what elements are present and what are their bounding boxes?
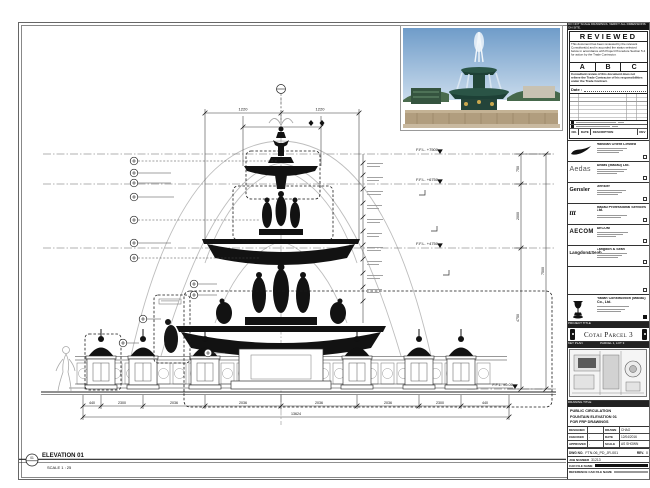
key-plan-section: KEY PLAN PARCEL 1, LOT 3 [568, 342, 649, 401]
aecom-logo: AECOM [570, 229, 594, 235]
dim-b2: 2036 [170, 401, 178, 405]
key-plan-label: KEY PLAN [568, 342, 584, 345]
log-mark-1 [571, 121, 574, 124]
log-mark-2 [571, 125, 574, 128]
cad-file-value-redacted [595, 464, 649, 467]
dim-b3: 2036 [239, 401, 247, 405]
scale-value: AS SHOWN [620, 441, 650, 448]
dim-b0: 440 [89, 401, 95, 405]
aedas-logo: Aedas [570, 166, 591, 173]
contractor-name: Yadan Construction (Macau) Co., Ltd. [597, 297, 647, 305]
bottom-dim-chains [81, 395, 512, 420]
approved-value: - [588, 441, 604, 448]
consultant-aedas: Aedas Aedas (Macau) Ltd. [568, 162, 649, 183]
drawn-value: CHAO [620, 427, 650, 434]
fountain-photo-image [403, 28, 560, 128]
title-block: DO NOT SCALE DRAWINGS. VERIFY ALL DIMENS… [567, 23, 649, 479]
consultant-name: Macau Professional Services Ltd. [597, 206, 648, 214]
contractor-block: Yadan Construction (Macau) Co., Ltd. [568, 295, 649, 322]
stamp-paragraph-1: This document has been reviewed by the r… [571, 43, 645, 57]
dim-b5: 2036 [384, 401, 392, 405]
dim-right-4750: 4750 [516, 314, 520, 322]
drawing-title-text: PUBLIC CIRCULATION FOUNTAIN ELEVATION 01… [568, 407, 649, 427]
spare-consultant-box [568, 267, 649, 295]
drawn-label: DRAWN [604, 427, 620, 434]
consultant-macau-professional: ttt Macau Professional Services Ltd. [568, 204, 649, 225]
rev-col-no: NO. [570, 129, 579, 135]
consultant-langdon-seah: Langdon&Seah Langdon & Seah [568, 246, 649, 267]
approved-label: APPROVED [568, 441, 588, 448]
log-bar-2b [612, 126, 618, 127]
log-bar-2 [576, 126, 610, 127]
log-bar-1 [576, 122, 616, 123]
contractor-mark [643, 315, 647, 319]
top-note-strip: DO NOT SCALE DRAWINGS. VERIFY ALL DIMENS… [568, 23, 649, 30]
drawing-title-line3: FOR FRP DRAWINGS [570, 420, 647, 426]
stamp-date-field[interactable] [584, 88, 646, 92]
project-title-text: Cotai Parcel 3 [584, 331, 633, 339]
cad-file-label: CAD FILE NAME [569, 464, 593, 468]
reference-cad-value [614, 471, 648, 473]
level-markers [437, 149, 518, 389]
dim-right-750: 750 [516, 166, 520, 172]
consultant-name: AECOM [597, 227, 648, 231]
elevation-scale-text: SCALE 1 : 25 [47, 465, 72, 470]
human-scale-figure [56, 347, 75, 392]
consultant-name: Aedas (Macau) Ltd. [597, 164, 648, 168]
dwg-no-row: DWG NO. FTN-06_PD_JR-001 REV. 0 [568, 449, 649, 457]
consultant-checkbox[interactable] [643, 197, 647, 201]
apex-detail-callout [277, 85, 286, 122]
drawing-sheet: 1220 1220 [18, 22, 650, 480]
ttt-logo: ttt [570, 208, 576, 217]
key-plan-note: PARCEL 1, LOT 3 [600, 342, 624, 345]
dim-b6: 2300 [436, 401, 444, 405]
dim-total: 13624 [291, 412, 301, 416]
ornament-icon [642, 329, 647, 340]
drawing-title-label: DRAWING TITLE [568, 401, 609, 404]
approval-fields: DESIGNED DRAWN CHAO CHECKED - DATE 12/04… [568, 427, 649, 449]
dim-right-2000: 2000 [516, 212, 520, 220]
stamp-log-table [570, 94, 647, 121]
rev-col-rev: REV [638, 129, 647, 135]
consultant-name: Langdon & Seah [597, 248, 648, 252]
consultant-name: Gensler [597, 185, 648, 189]
checked-label: CHECKED [568, 434, 588, 441]
dim-top-left: 1220 [239, 107, 249, 112]
handian-logo [570, 143, 597, 160]
stamp-paragraph-2: Consultant review of this document does … [571, 73, 645, 83]
dim-b7: 440 [482, 401, 488, 405]
dwg-no-label: DWG NO. [569, 451, 583, 455]
elevation-title [19, 454, 566, 466]
scale-label: SCALE [604, 441, 620, 448]
designed-label: DESIGNED [568, 427, 588, 434]
spare-checkbox[interactable] [643, 288, 647, 292]
designed-value [588, 427, 604, 434]
consultant-checkbox[interactable] [643, 239, 647, 243]
consultant-checkbox[interactable] [643, 260, 647, 264]
stamp-option-b[interactable]: B [596, 63, 622, 72]
date-value: 12/04/2016 [620, 434, 650, 441]
rev-col-description: DESCRIPTION [591, 129, 638, 135]
project-title-label: PROJECT TITLE [568, 322, 609, 325]
stamp-option-a[interactable]: A [570, 63, 596, 72]
dwg-no-value: FTN-06_PD_JR-001 [585, 451, 635, 455]
date-label: DATE [604, 434, 620, 441]
consultant-gensler: Gensler Gensler [568, 183, 649, 204]
gensler-logo: Gensler [570, 187, 590, 193]
consultant-name: Handian Orient Limited [597, 143, 648, 147]
stamp-date-label: Date : [571, 87, 582, 92]
reference-cad-label: REFERENCE CAD FILE NAME [569, 470, 612, 474]
dim-b1: 2300 [118, 401, 126, 405]
consultant-checkbox[interactable] [643, 218, 647, 222]
level-6750: F.F.L. +6750 [416, 177, 439, 182]
project-title-row: Cotai Parcel 3 [568, 328, 649, 342]
rev-label: REV. [637, 451, 644, 455]
level-7500: F.F.L. +7500 [416, 147, 439, 152]
reviewed-stamp: REVIEWED This document has been reviewed… [568, 30, 649, 141]
revision-table-header: NO. DATE DESCRIPTION REV [570, 129, 647, 135]
log-bar-1b [618, 122, 624, 123]
dim-b4: 2036 [315, 401, 323, 405]
consultant-checkbox[interactable] [643, 155, 647, 159]
fountain-pedestal [231, 349, 331, 389]
job-number-value: 31213 [591, 458, 600, 462]
checked-value: - [588, 434, 604, 441]
reviewed-title: REVIEWED [570, 32, 647, 42]
ornament-icon [570, 329, 575, 340]
elevation-bubble-number: 01 [30, 456, 34, 460]
rev-value: 0 [646, 451, 648, 455]
rev-col-date: DATE [579, 129, 591, 135]
dim-top-right: 1220 [316, 107, 326, 112]
elevation-title-text: ELEVATION 01 [42, 453, 84, 459]
dim-right-7500: 7500 [541, 267, 545, 275]
consultant-handian: Handian Orient Limited [568, 141, 649, 162]
consultant-aecom: AECOM AECOM [568, 225, 649, 246]
stamp-option-c[interactable]: C [621, 63, 647, 72]
key-plan-map [568, 348, 649, 400]
consultant-checkbox[interactable] [643, 176, 647, 180]
stamp-status-options: A B C [570, 63, 647, 72]
job-number-label: JOB NUMBER [569, 458, 589, 462]
reference-cad-row: REFERENCE CAD FILE NAME [568, 469, 649, 475]
fountain-reference-photo [400, 25, 563, 131]
yadan-logo [570, 297, 597, 319]
level-4750: F.F.L. +4750 [416, 241, 439, 246]
top-note-text: DO NOT SCALE DRAWINGS. VERIFY ALL DIMENS… [568, 23, 648, 30]
level-0000: F.F.L. ±0.00 [492, 382, 513, 387]
ground-line [41, 392, 556, 395]
